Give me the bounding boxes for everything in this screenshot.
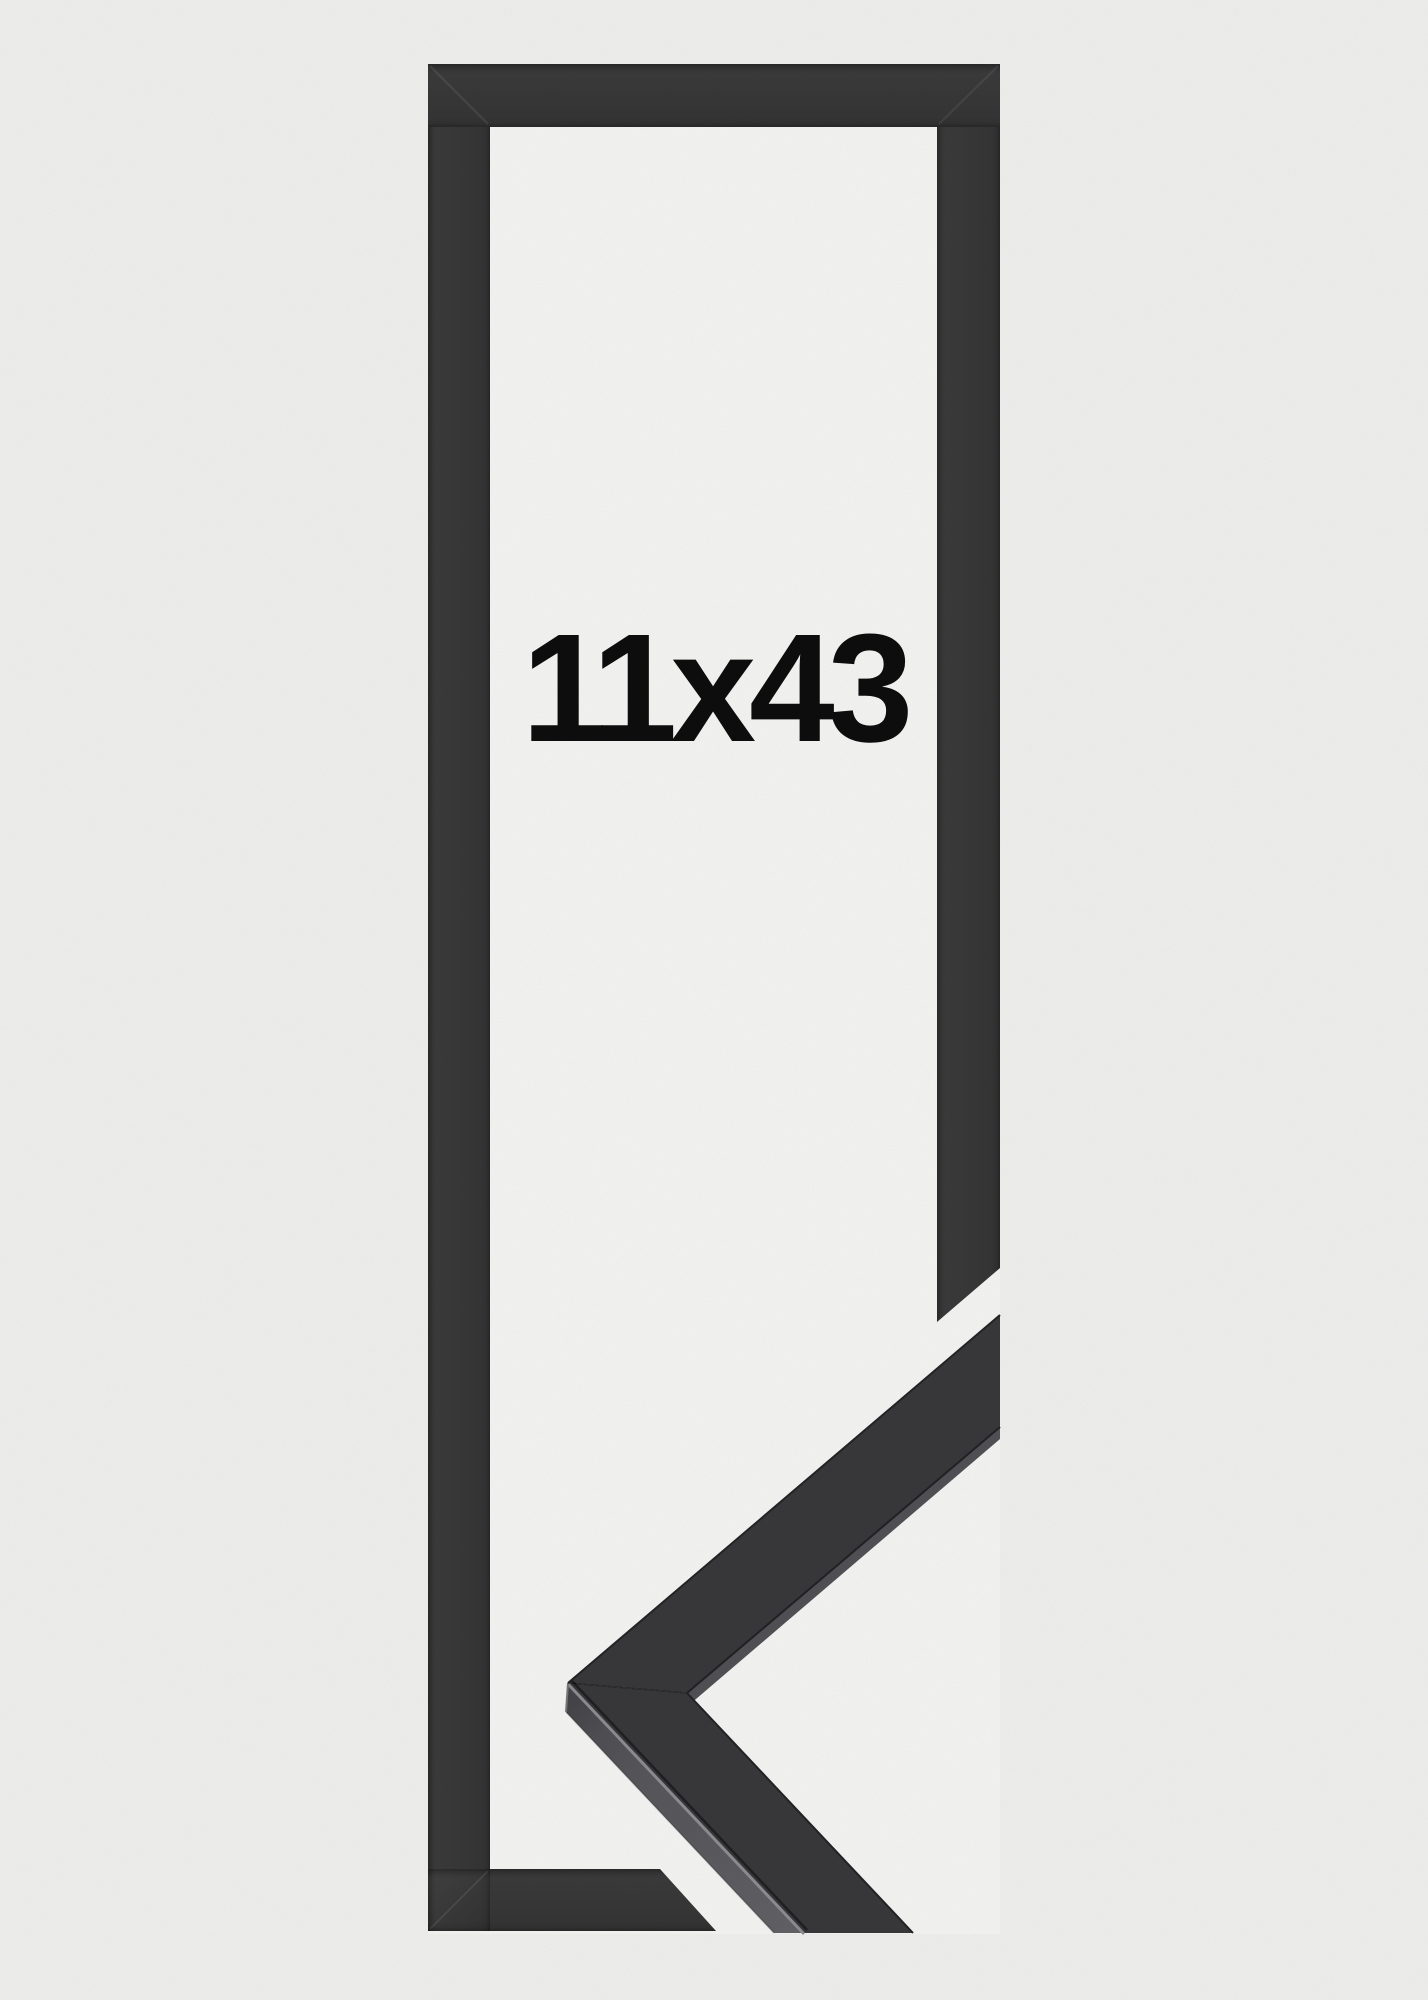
frame-product-image: 11x43 (0, 0, 1428, 2000)
product-photo-canvas: 11x43 (0, 0, 1428, 2000)
photo-grain-overlay (0, 0, 1428, 2000)
